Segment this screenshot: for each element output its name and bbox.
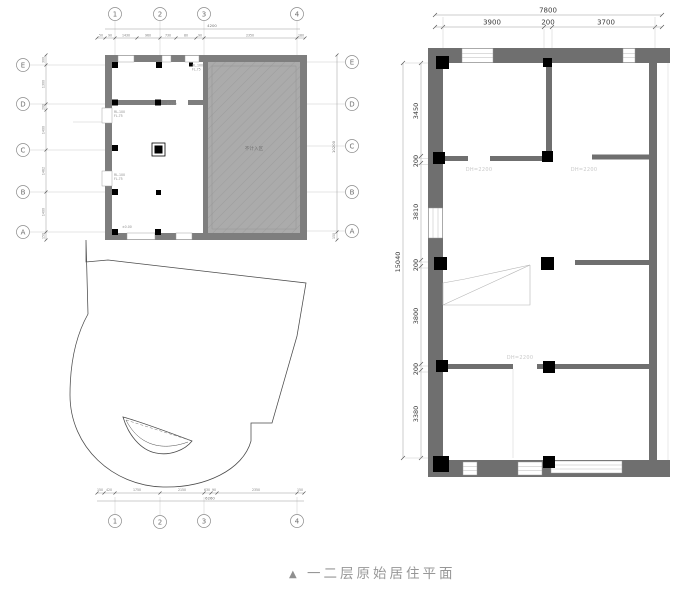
dim-label: 6260 bbox=[205, 496, 215, 501]
window bbox=[176, 233, 192, 240]
window bbox=[623, 49, 635, 63]
column bbox=[436, 56, 449, 69]
interior-wall bbox=[490, 156, 543, 161]
column bbox=[542, 151, 553, 162]
dim-label: 2350 bbox=[246, 34, 254, 38]
dim-label: 200 bbox=[412, 259, 420, 271]
grid-bubble-label: 4 bbox=[295, 11, 300, 19]
grid-bubble-label: 1 bbox=[113, 11, 117, 19]
column bbox=[543, 456, 555, 468]
dim-label: 3700 bbox=[597, 19, 615, 27]
dim-label: 2350 bbox=[252, 488, 260, 492]
dim-label: 180 bbox=[298, 34, 304, 38]
dim-label: 10200 bbox=[331, 140, 336, 153]
window bbox=[185, 56, 199, 63]
interior-wall bbox=[546, 63, 552, 158]
grid-bubble-label: B bbox=[350, 189, 355, 197]
dim-label: 90 bbox=[108, 34, 112, 38]
column bbox=[434, 257, 447, 270]
dim-label: 1462 bbox=[42, 167, 46, 175]
dim-label: 300 bbox=[42, 57, 46, 63]
caption-triangle-icon: ▲ bbox=[289, 569, 297, 580]
column bbox=[436, 360, 448, 372]
dim-label: 200 bbox=[412, 155, 420, 167]
grid-bubble-label: 2 bbox=[158, 519, 162, 527]
interior-wall bbox=[575, 260, 651, 265]
dim-label: 3450 bbox=[412, 103, 420, 120]
dim-label: 1400 bbox=[42, 126, 46, 134]
dim-label: 90 bbox=[212, 488, 216, 492]
right-plan-building: DH=2200 DH=2200 DH=2200 bbox=[428, 48, 670, 477]
grid-bubble-label: 2 bbox=[158, 11, 162, 19]
dim-label: 7800 bbox=[539, 7, 557, 15]
dim-label: 150 bbox=[97, 488, 103, 492]
dim-label: 4200 bbox=[207, 23, 217, 28]
dim-label: 630 bbox=[204, 488, 210, 492]
column bbox=[155, 146, 163, 154]
column bbox=[156, 190, 161, 195]
caption: ▲ 一二层原始居住平面 bbox=[289, 566, 456, 582]
grid-bubble-label: A bbox=[21, 229, 26, 237]
grid-bubble-label: E bbox=[350, 59, 354, 67]
dim-label: 1430 bbox=[122, 34, 130, 38]
column bbox=[543, 361, 555, 373]
window bbox=[462, 49, 493, 63]
grid-bubble-label: 3 bbox=[202, 11, 206, 19]
grid-bubble-label: 3 bbox=[202, 518, 206, 526]
grid-bubble-label: 4 bbox=[295, 518, 300, 526]
door-annotation: D.220 bbox=[167, 102, 177, 106]
dim-label: 200 bbox=[541, 19, 554, 27]
window bbox=[162, 56, 171, 63]
level-annotation: FL.75 bbox=[192, 68, 201, 72]
area-label: 不计入区 bbox=[245, 145, 264, 152]
dim-label: 150 bbox=[297, 488, 303, 492]
interior-wall bbox=[443, 364, 513, 369]
column bbox=[433, 152, 445, 164]
grid-bubble-label: D bbox=[20, 101, 25, 109]
stair-shape bbox=[443, 265, 530, 305]
dim-label: 3800 bbox=[412, 308, 420, 325]
architectural-drawing-sheet: 4200 50 90 1430 960 730 80 90 2350 180 1… bbox=[0, 0, 674, 590]
window bbox=[463, 462, 477, 475]
floor-plan-svg: 4200 50 90 1430 960 730 80 90 2350 180 1… bbox=[0, 0, 674, 590]
column bbox=[433, 456, 449, 472]
door-height-label: DH=2200 bbox=[571, 167, 598, 173]
column bbox=[543, 58, 552, 67]
column bbox=[112, 145, 118, 151]
dim-label: 150 bbox=[42, 233, 46, 239]
site-outline bbox=[70, 240, 306, 487]
interior-wall bbox=[592, 155, 652, 160]
column bbox=[156, 62, 162, 68]
dim-label: 50 bbox=[99, 34, 103, 38]
grid-bubble-label: D bbox=[349, 101, 354, 109]
dim-label: 730 bbox=[165, 34, 171, 38]
window bbox=[102, 108, 112, 123]
dim-label: 960 bbox=[145, 34, 151, 38]
dim-label: 150 bbox=[332, 233, 336, 239]
grid-bubble-label: B bbox=[21, 189, 26, 197]
dim-label: 3380 bbox=[412, 406, 420, 423]
interior-wall bbox=[443, 156, 468, 161]
dim-label: 1400 bbox=[42, 208, 46, 216]
level-annotation: FL.75 bbox=[114, 114, 123, 118]
column bbox=[112, 189, 118, 195]
door-height-label: DH=2200 bbox=[466, 167, 493, 173]
door-opening bbox=[176, 100, 188, 106]
grid-bubble-label: A bbox=[350, 228, 355, 236]
dim-label: 1750 bbox=[133, 488, 141, 492]
window bbox=[127, 233, 155, 240]
grid-bubble-label: C bbox=[350, 143, 355, 151]
dim-label: 3900 bbox=[483, 19, 501, 27]
left-plan-building: 不计入区 RL.100 FL.75 RL.100 FL.75 RL.100 bbox=[102, 55, 307, 240]
grid-bubble-label: C bbox=[21, 147, 26, 155]
caption-title: 一二层原始居住平面 bbox=[307, 566, 456, 582]
window bbox=[102, 171, 112, 186]
dim-label: 200 bbox=[42, 104, 46, 110]
door-height-label: DH=2200 bbox=[507, 355, 534, 361]
window bbox=[429, 208, 443, 238]
dim-label: 420 bbox=[106, 488, 112, 492]
dim-label: 90 bbox=[198, 34, 202, 38]
dim-label: 80 bbox=[184, 34, 188, 38]
grid-bubble-label: 1 bbox=[113, 518, 117, 526]
column bbox=[155, 229, 161, 235]
window bbox=[551, 461, 622, 473]
dim-label: 200 bbox=[412, 363, 420, 375]
window bbox=[518, 462, 542, 475]
dim-label: 1300 bbox=[42, 80, 46, 88]
dim-label: 3810 bbox=[412, 204, 420, 221]
dim-label: 15040 bbox=[394, 252, 402, 273]
dim-label: 2150 bbox=[178, 488, 186, 492]
column bbox=[541, 257, 554, 270]
site-boundary bbox=[70, 240, 306, 487]
window bbox=[118, 56, 134, 63]
grid-bubble-label: E bbox=[21, 62, 25, 70]
column bbox=[112, 100, 118, 106]
column bbox=[112, 229, 118, 235]
level-annotation: ±0.00 bbox=[122, 225, 132, 229]
level-annotation: FL.75 bbox=[114, 177, 123, 181]
column bbox=[112, 62, 118, 68]
column bbox=[155, 100, 161, 106]
